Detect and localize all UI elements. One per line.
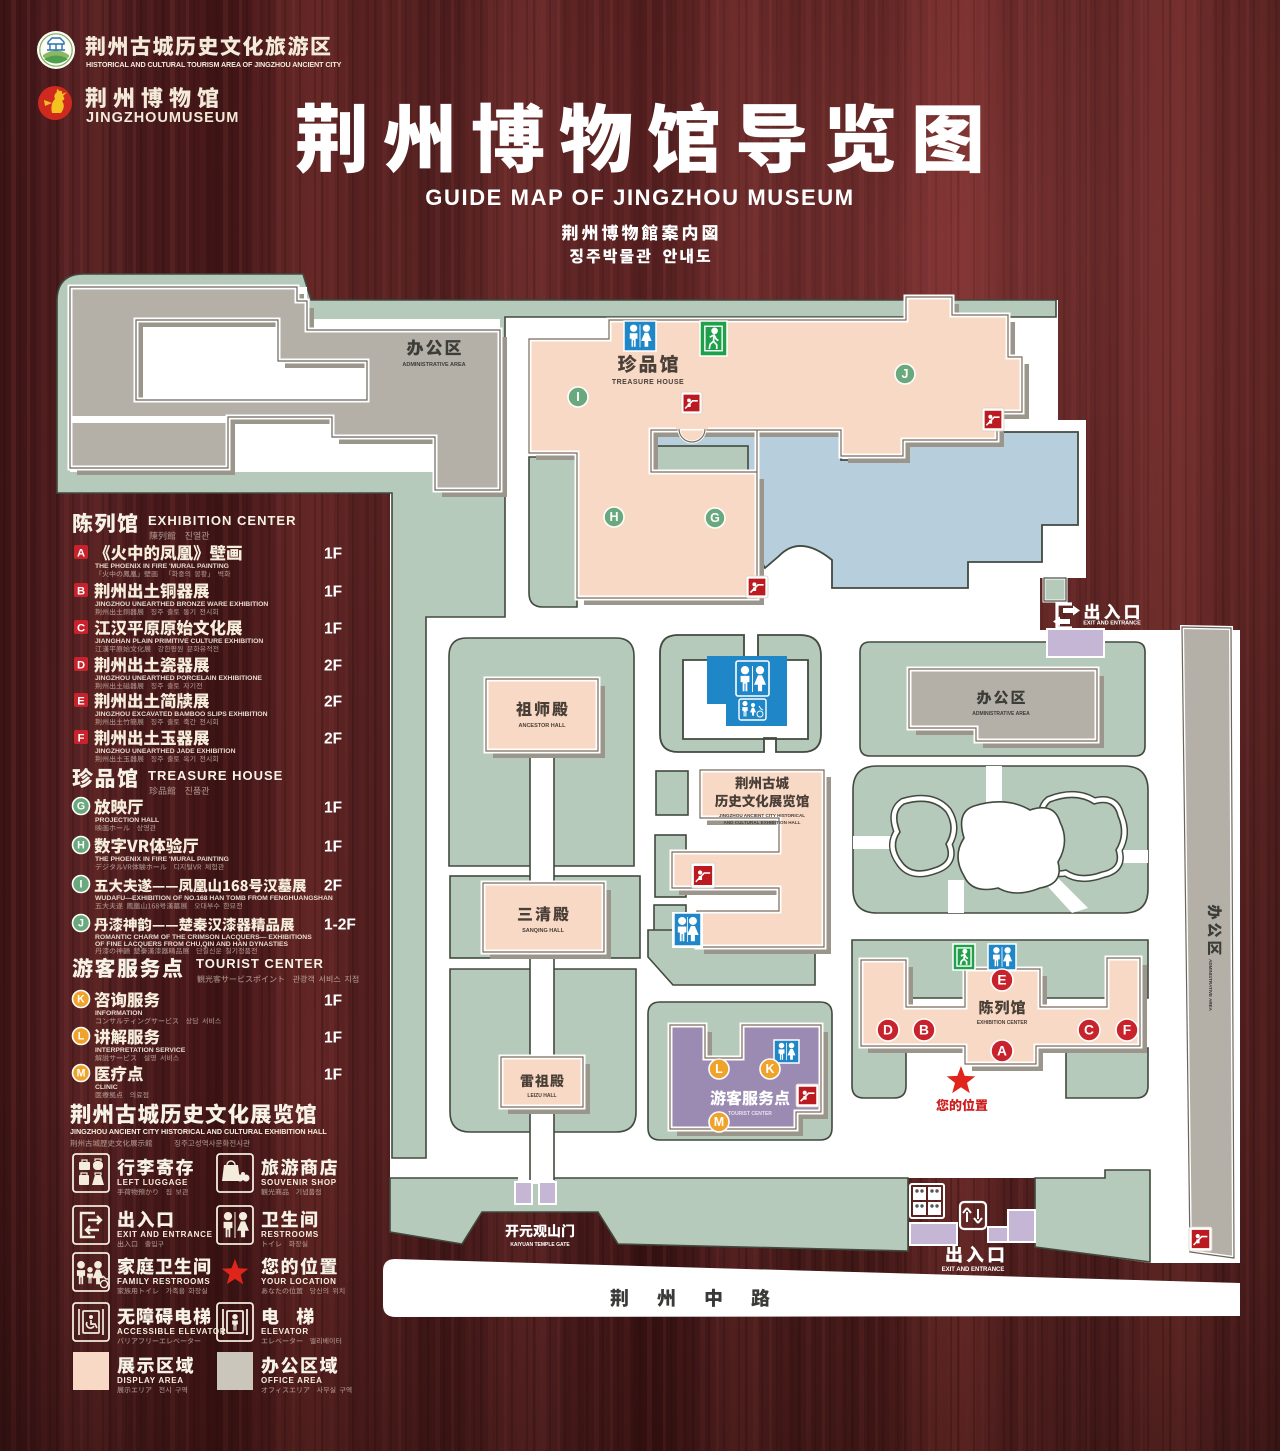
svg-text:ADMINISTRATIVE AREA: ADMINISTRATIVE AREA: [972, 711, 1030, 717]
svg-text:1F: 1F: [324, 546, 342, 563]
svg-text:I: I: [576, 390, 579, 404]
svg-text:1F: 1F: [324, 839, 342, 856]
svg-text:B: B: [919, 1023, 929, 1038]
svg-text:I: I: [80, 879, 83, 891]
svg-text:JINGZHOU UNEARTHED BRONZE WARE: JINGZHOU UNEARTHED BRONZE WARE EXHIBITIO…: [95, 601, 268, 608]
svg-text:DISPLAY AREA: DISPLAY AREA: [117, 1376, 184, 1385]
svg-text:EXIT AND ENTRANCE: EXIT AND ENTRANCE: [1083, 621, 1141, 627]
svg-text:EXIT AND ENTRANCE: EXIT AND ENTRANCE: [117, 1230, 213, 1239]
svg-text:1F: 1F: [324, 1067, 342, 1084]
svg-text:TREASURE HOUSE: TREASURE HOUSE: [612, 379, 684, 386]
svg-text:K: K: [77, 994, 85, 1006]
svg-text:M: M: [714, 1115, 724, 1129]
svg-text:EXIT AND ENTRANCE: EXIT AND ENTRANCE: [942, 1267, 1005, 1273]
svg-text:GUIDE MAP OF JINGZHOU MUSEUM: GUIDE MAP OF JINGZHOU MUSEUM: [425, 185, 854, 210]
svg-text:CLINIC: CLINIC: [95, 1084, 118, 1091]
svg-text:THE PHOENIX IN FIRE 'MURAL PAI: THE PHOENIX IN FIRE 'MURAL PAINTING: [95, 563, 229, 570]
svg-text:A: A: [77, 547, 85, 559]
svg-text:B: B: [77, 585, 85, 597]
svg-text:JINGZHOU ANCIENT CITY HISTORIC: JINGZHOU ANCIENT CITY HISTORICAL AND CUL…: [70, 1127, 327, 1136]
svg-text:M: M: [77, 1068, 86, 1080]
svg-text:ANCESTOR HALL: ANCESTOR HALL: [519, 723, 567, 729]
svg-text:OFFICE AREA: OFFICE AREA: [261, 1376, 323, 1385]
svg-text:J: J: [78, 918, 84, 930]
svg-text:ADMINISTRATIVE AREA: ADMINISTRATIVE AREA: [402, 362, 465, 368]
svg-text:JINGZHOUMUSEUM: JINGZHOUMUSEUM: [86, 110, 239, 126]
svg-text:YOUR LOCATION: YOUR LOCATION: [261, 1277, 337, 1286]
svg-text:SANQING HALL: SANQING HALL: [522, 928, 565, 934]
svg-text:1F: 1F: [324, 621, 342, 638]
svg-text:2F: 2F: [324, 731, 342, 748]
svg-text:FAMILY RESTROOMS: FAMILY RESTROOMS: [117, 1277, 210, 1286]
svg-text:TOURIST CENTER: TOURIST CENTER: [196, 956, 324, 971]
svg-text:2F: 2F: [324, 658, 342, 675]
svg-text:C: C: [1084, 1023, 1094, 1038]
svg-text:1F: 1F: [324, 800, 342, 817]
svg-text:D: D: [77, 659, 85, 671]
svg-text:EXHIBITION CENTER: EXHIBITION CENTER: [148, 513, 296, 528]
svg-text:H: H: [609, 510, 618, 524]
svg-text:AND CULTURAL EXHIBITION HALL: AND CULTURAL EXHIBITION HALL: [724, 820, 801, 825]
svg-text:J: J: [902, 367, 909, 381]
svg-text:ROMANTIC CHARM OF THE CRIMSON: ROMANTIC CHARM OF THE CRIMSON LACQUERS— …: [95, 934, 312, 941]
svg-text:G: G: [710, 511, 720, 525]
svg-text:2F: 2F: [324, 878, 342, 895]
svg-text:1-2F: 1-2F: [324, 917, 356, 934]
svg-text:A: A: [997, 1044, 1007, 1059]
svg-text:ACCESSIBLE ELEVATOR: ACCESSIBLE ELEVATOR: [117, 1327, 226, 1336]
svg-text:TOURIST CENTER: TOURIST CENTER: [728, 1111, 772, 1117]
svg-text:RESTROOMS: RESTROOMS: [261, 1230, 319, 1239]
svg-text:ADMINISTRATIVE AREA: ADMINISTRATIVE AREA: [1208, 959, 1213, 1012]
svg-text:F: F: [78, 732, 85, 744]
svg-text:1F: 1F: [324, 584, 342, 601]
svg-text:THE PHOENIX IN FIRE 'MURAL PAI: THE PHOENIX IN FIRE 'MURAL PAINTING: [95, 856, 229, 863]
svg-text:TREASURE HOUSE: TREASURE HOUSE: [148, 768, 283, 783]
svg-text:INFORMATION: INFORMATION: [95, 1010, 143, 1017]
svg-text:JINGZHOU UNEARTHED PORCELAIN E: JINGZHOU UNEARTHED PORCELAIN EXHIBITIONE: [95, 675, 262, 682]
svg-text:LEIZU HALL: LEIZU HALL: [527, 1093, 556, 1099]
svg-text:1F: 1F: [324, 993, 342, 1010]
svg-text:SOUVENIR SHOP: SOUVENIR SHOP: [261, 1178, 337, 1187]
svg-text:L: L: [715, 1062, 723, 1076]
svg-text:PROJECTION HALL: PROJECTION HALL: [95, 817, 159, 824]
svg-text:1F: 1F: [324, 1030, 342, 1047]
svg-text:L: L: [78, 1031, 85, 1043]
svg-text:E: E: [77, 695, 85, 707]
svg-text:LEFT LUGGAGE: LEFT LUGGAGE: [117, 1178, 188, 1187]
svg-text:INTERPRETATION SERVICE: INTERPRETATION SERVICE: [95, 1047, 186, 1054]
svg-text:C: C: [77, 622, 85, 634]
svg-text:F: F: [1123, 1023, 1131, 1038]
svg-text:ELEVATOR: ELEVATOR: [261, 1327, 309, 1336]
svg-text:JINGZHOU EXCAVATED BAMBOO SLIP: JINGZHOU EXCAVATED BAMBOO SLIPS EXHIBITI…: [95, 711, 268, 718]
svg-text:WUDAFU—EXHIBITION OF NO.168 HA: WUDAFU—EXHIBITION OF NO.168 HAN TOMB FRO…: [95, 895, 333, 902]
svg-text:2F: 2F: [324, 694, 342, 711]
svg-text:JINGZHOU UNEARTHED JADE EXHIBI: JINGZHOU UNEARTHED JADE EXHIBITION: [95, 748, 236, 755]
svg-text:JIANGHAN PLAIN PRIMITIVE CULTU: JIANGHAN PLAIN PRIMITIVE CULTURE EXHIBIT…: [95, 638, 263, 645]
svg-text:EXHIBITION CENTER: EXHIBITION CENTER: [977, 1020, 1028, 1026]
svg-text:HISTORICAL AND CULTURAL TOURIS: HISTORICAL AND CULTURAL TOURISM AREA OF …: [86, 60, 342, 69]
svg-text:E: E: [997, 973, 1006, 988]
svg-text:D: D: [883, 1023, 893, 1038]
svg-text:KAIYUAN TEMPLE GATE: KAIYUAN TEMPLE GATE: [510, 1242, 570, 1248]
svg-text:K: K: [765, 1062, 774, 1076]
svg-text:OF FINE LACQUERS FROM CHU,QIN: OF FINE LACQUERS FROM CHU,QIN AND HAN DY…: [95, 941, 289, 948]
svg-text:G: G: [77, 801, 85, 813]
svg-text:JINGZHOU ANCIENT CITY HISTORIC: JINGZHOU ANCIENT CITY HISTORICAL: [719, 813, 805, 818]
svg-text:H: H: [77, 840, 85, 852]
